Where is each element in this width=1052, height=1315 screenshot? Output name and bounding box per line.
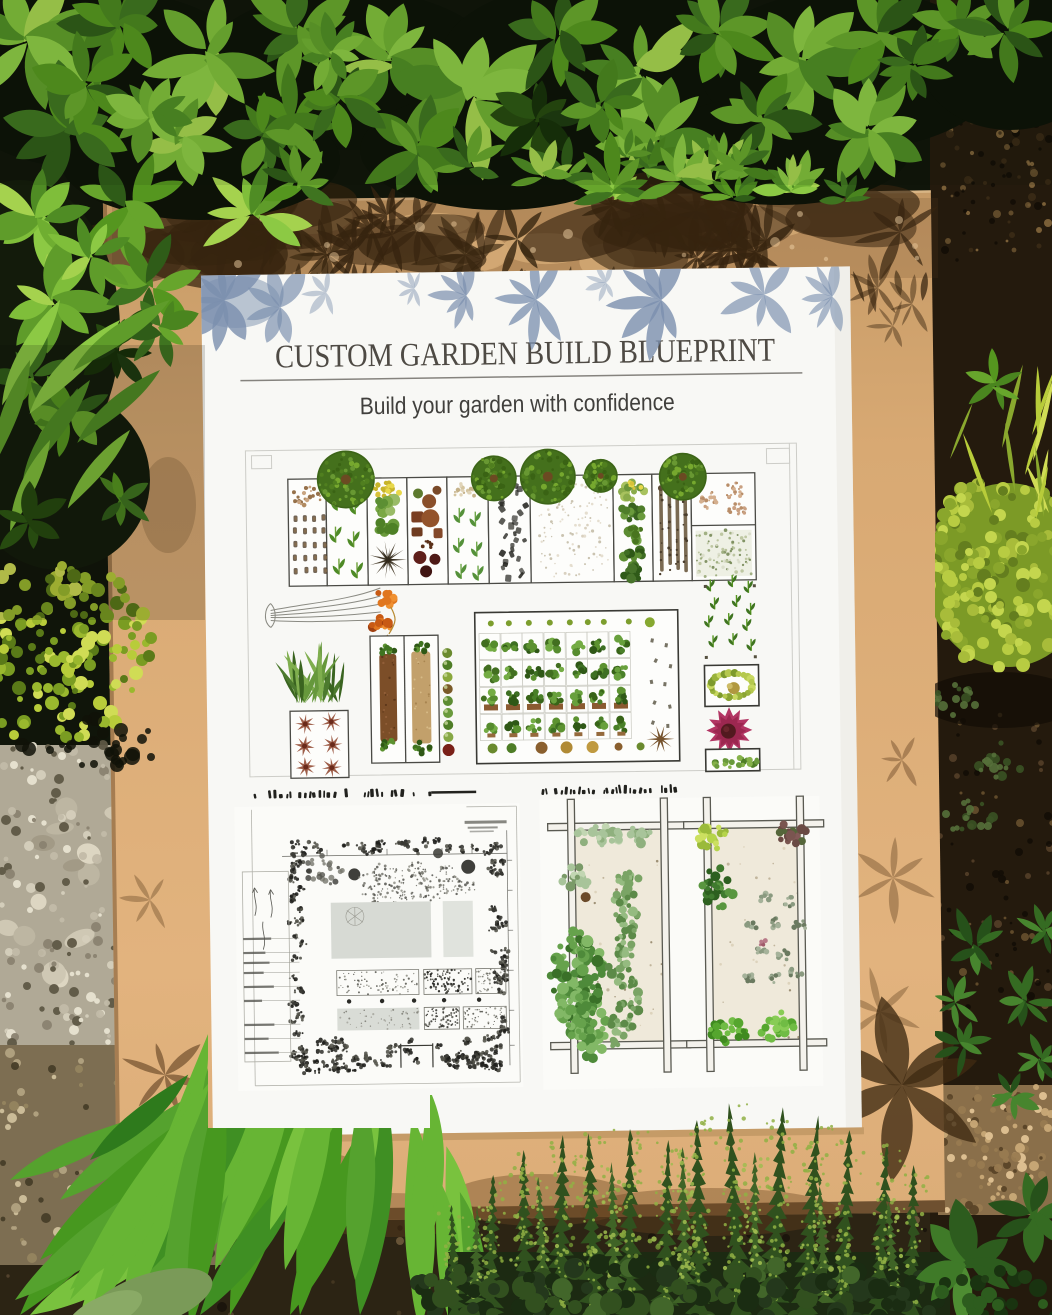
svg-text:Build your garden with confide: Build your garden with confidence xyxy=(360,389,675,420)
svg-text:CUSTOM GARDEN BUILD BLUEPRINT: CUSTOM GARDEN BUILD BLUEPRINT xyxy=(275,332,775,375)
